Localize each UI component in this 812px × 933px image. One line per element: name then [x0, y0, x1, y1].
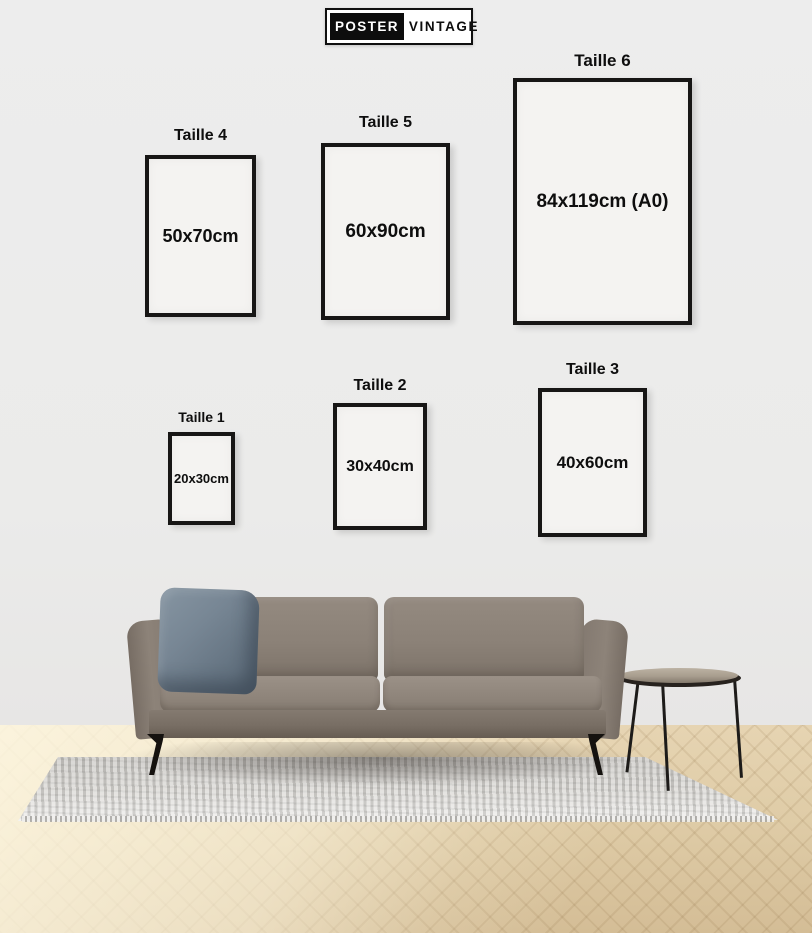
poster-frame: 30x40cm [333, 403, 427, 530]
brand-logo-vintage: VINTAGE [409, 13, 479, 40]
sofa-seat-cushion [383, 676, 602, 713]
sofa-base [149, 710, 606, 738]
poster-frame: 50x70cm [145, 155, 256, 317]
frame-label: Taille 2 [333, 378, 427, 394]
frame-label: Taille 4 [145, 128, 256, 144]
frame-size-text: 84x119cm (A0) [536, 191, 668, 213]
side-table [620, 668, 738, 683]
brand-logo-poster: POSTER [330, 13, 404, 40]
poster-size-guide: POSTER VINTAGE Taille 4 50x70cm Taille 5… [0, 0, 812, 933]
poster-frame: 84x119cm (A0) [513, 78, 692, 325]
frame-size-text: 40x60cm [557, 453, 629, 473]
frame-label: Taille 5 [321, 115, 450, 131]
sofa-shadow [128, 742, 628, 786]
rug-fringe [22, 816, 774, 822]
poster-frame: 60x90cm [321, 143, 450, 320]
brand-logo: POSTER VINTAGE [325, 8, 473, 45]
frame-label: Taille 1 [168, 410, 235, 424]
frame-size-text: 60x90cm [345, 221, 425, 243]
frame-label: Taille 3 [538, 362, 647, 378]
frame-size-text: 30x40cm [346, 458, 414, 476]
frame-size-text: 50x70cm [162, 226, 238, 247]
frame-size-text: 20x30cm [174, 471, 229, 486]
poster-frame: 40x60cm [538, 388, 647, 537]
poster-frame: 20x30cm [168, 432, 235, 525]
sofa-back-cushion [384, 597, 584, 681]
frame-label: Taille 6 [513, 52, 692, 69]
throw-pillow [157, 587, 260, 694]
